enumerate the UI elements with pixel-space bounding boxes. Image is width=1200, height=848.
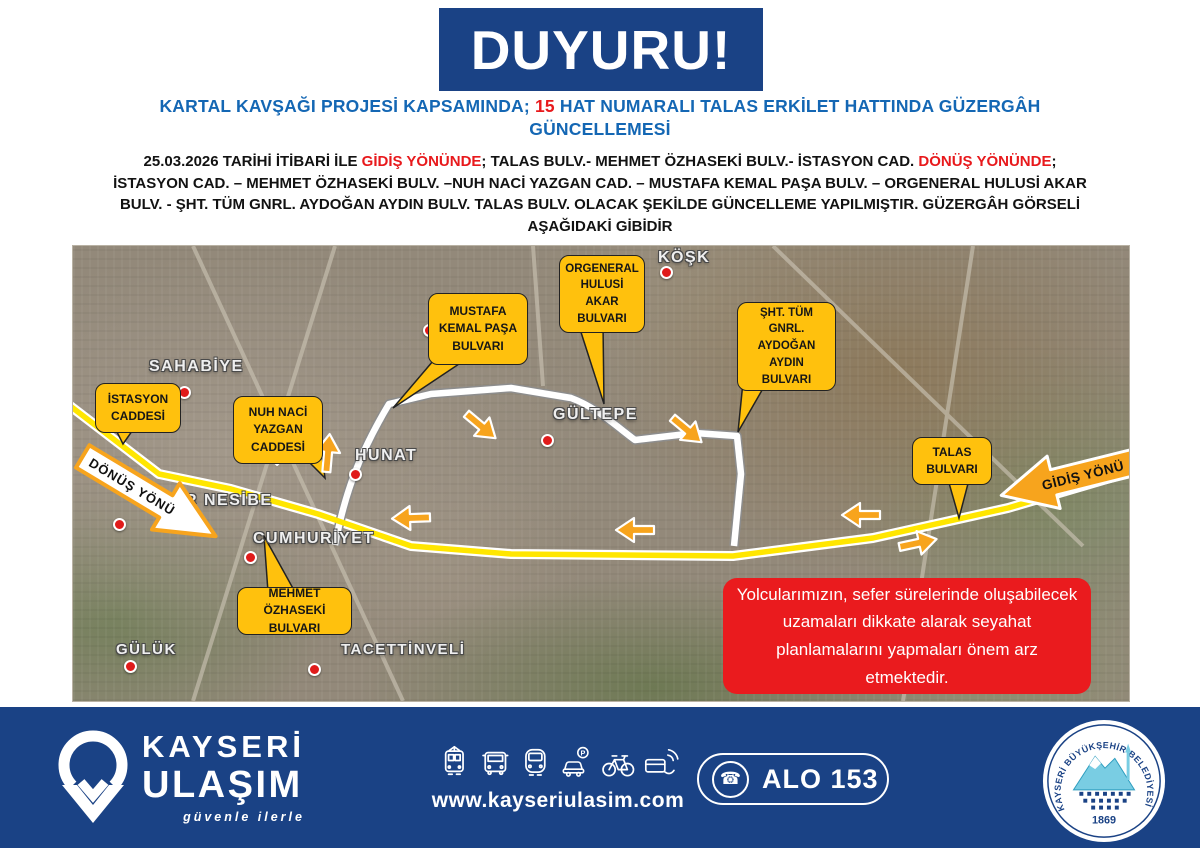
- title-line-2: GÜNCELLEMESİ: [0, 118, 1200, 141]
- kayseri-ulasim-logo-icon: [48, 723, 140, 833]
- bus-icon: [478, 740, 513, 784]
- place-label: GÜLTEPE: [553, 406, 638, 424]
- route-map: SAHABİYE R NESİBE CUMHURİYET HUNAT GÜLTE…: [72, 245, 1130, 702]
- arrow-mustafa-kemal: [459, 405, 504, 448]
- map-marker: [308, 663, 321, 676]
- callout-talas-bulvari: TALAS BULVARI: [912, 437, 992, 485]
- website-url: www.kayseriulasim.com: [417, 789, 699, 813]
- map-marker: [244, 551, 257, 564]
- callout-nuh-naci-yazgan: NUH NACİ YAZGAN CADDESİ: [233, 396, 323, 464]
- arrow-left-1: [392, 505, 431, 530]
- brand-wordmark: KAYSERİ ULAŞIM güvenle ilerle: [142, 731, 305, 824]
- phone-icon: ☎: [712, 761, 749, 798]
- tram-icon: [437, 740, 472, 784]
- footer: KAYSERİ ULAŞIM güvenle ilerle: [0, 707, 1200, 848]
- svg-text:P: P: [581, 748, 586, 757]
- arrow-left-3: [842, 503, 880, 527]
- callout-orgeneral-hulusi-akar: ORGENERAL HULUSİ AKAR BULVARI: [559, 255, 645, 333]
- transport-icons: P: [437, 740, 679, 784]
- map-marker: [124, 660, 137, 673]
- body-line-2: İSTASYON CAD. – MEHMET ÖZHASEKİ BULV. –N…: [0, 173, 1200, 195]
- page-title: KARTAL KAVŞAĞI PROJESİ KAPSAMINDA; 15 HA…: [0, 95, 1200, 141]
- place-label: HUNAT: [355, 447, 417, 465]
- municipality-seal: KAYSERİ BÜYÜKŞEHİR BELEDİYESİ 1869: [1040, 717, 1168, 845]
- place-label: GÜLÜK: [116, 641, 177, 658]
- callout-sht-aydogan-aydin: ŞHT. TÜM GNRL. AYDOĞAN AYDIN BULVARI: [737, 302, 836, 391]
- passenger-notice: Yolcularımızın, sefer sürelerinde oluşab…: [723, 578, 1091, 694]
- callout-mustafa-kemal-pasa: MUSTAFA KEMAL PAŞA BULVARI: [428, 293, 528, 365]
- announcement-body: 25.03.2026 TARİHİ İTİBARİ İLE GİDİŞ YÖNÜ…: [0, 151, 1200, 237]
- hotline-number: ALO 153: [762, 764, 879, 795]
- car-parking-icon: P: [559, 740, 594, 784]
- contactless-payment-icon: [642, 740, 679, 784]
- hotline-badge: ☎ ALO 153: [697, 753, 889, 805]
- arrow-left-2: [616, 518, 654, 542]
- brand-line-2: ULAŞIM: [142, 766, 305, 804]
- place-label: KÖŞK: [658, 249, 710, 267]
- callout-mehmet-ozhaseki: MEHMET ÖZHASEKİ BULVARI: [237, 587, 352, 635]
- place-label: SAHABİYE: [149, 358, 244, 376]
- place-label: TACETTİNVELİ: [341, 641, 465, 658]
- line-number: 15: [535, 96, 555, 116]
- map-marker: [349, 468, 362, 481]
- map-marker: [660, 266, 673, 279]
- announcement-poster: DUYURU! KARTAL KAVŞAĞI PROJESİ KAPSAMIND…: [0, 0, 1200, 848]
- bicycle-icon: [600, 740, 637, 784]
- seal-year: 1869: [1092, 814, 1116, 826]
- body-line-3: BULV. - ŞHT. TÜM GNRL. AYDOĞAN AYDIN BUL…: [0, 194, 1200, 216]
- brand-line-1: KAYSERİ: [142, 731, 305, 762]
- metro-icon: [518, 740, 553, 784]
- title-line-1: KARTAL KAVŞAĞI PROJESİ KAPSAMINDA; 15 HA…: [0, 95, 1200, 118]
- banner: DUYURU!: [439, 8, 763, 91]
- map-marker: [541, 434, 554, 447]
- banner-title: DUYURU!: [471, 18, 732, 82]
- brand-tagline: güvenle ilerle: [142, 811, 305, 824]
- body-line-4: AŞAĞIDAKİ GİBİDİR: [0, 216, 1200, 238]
- callout-istasyon-caddesi: İSTASYON CADDESİ: [95, 383, 181, 433]
- body-line-1: 25.03.2026 TARİHİ İTİBARİ İLE GİDİŞ YÖNÜ…: [0, 151, 1200, 173]
- place-label: CUMHURİYET: [253, 530, 375, 548]
